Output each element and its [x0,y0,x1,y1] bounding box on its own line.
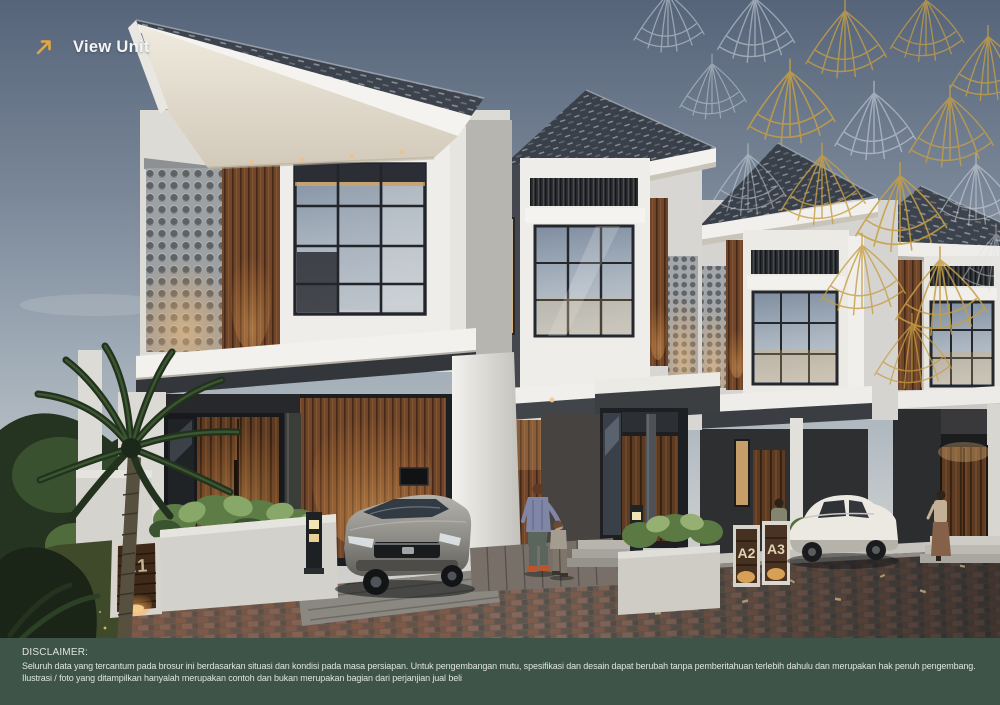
view-unit-button[interactable]: View Unit [34,37,150,57]
brochure-page: A1 [0,0,1000,705]
unit-sign-a2-label: A2 [738,545,756,561]
property-render: A1 [0,0,1000,705]
arrow-up-right-icon [34,37,54,57]
disclaimer-line-1: Seluruh data yang tercantum pada brosur … [22,661,1000,673]
disclaimer-line-2: Ilustrasi / foto yang ditampilkan hanyal… [22,673,1000,685]
unit-sign-a3-label: A3 [767,541,785,557]
disclaimer-band: DISCLAIMER: Seluruh data yang tercantum … [0,638,1000,705]
bollard-light-1 [304,512,324,574]
disclaimer-heading: DISCLAIMER: [22,647,1000,658]
unit-sign-a2: A2 [733,525,760,587]
unit-sign-a3: A3 [762,521,790,585]
planter-shrubs-2 [618,512,723,615]
view-unit-label: View Unit [73,38,150,57]
